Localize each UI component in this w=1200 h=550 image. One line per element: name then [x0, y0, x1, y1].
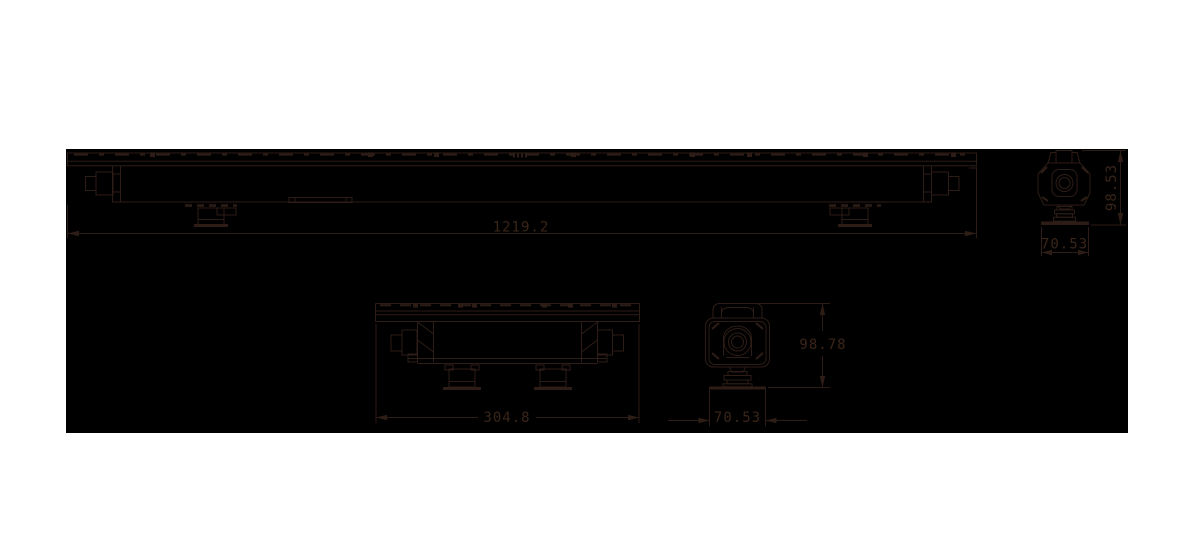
end-bottom-base-plate [709, 387, 766, 390]
drawing-canvas [66, 149, 1128, 433]
dimension-drawing-page: 1219.2 98.53 [0, 0, 1200, 550]
dim-label-end-bottom-height: 98.78 [799, 337, 846, 353]
dim-label-end-bottom-width: 70.53 [714, 410, 761, 426]
dim-label-full-length: 1219.2 [493, 220, 550, 236]
dim-label-end-top-width: 70.53 [1041, 237, 1088, 253]
dim-label-module-length: 304.8 [483, 410, 530, 426]
technical-drawing: 1219.2 98.53 [0, 0, 1200, 550]
dim-label-end-top-height: 98.53 [1104, 164, 1120, 211]
end-top-base-plate [1041, 222, 1089, 226]
